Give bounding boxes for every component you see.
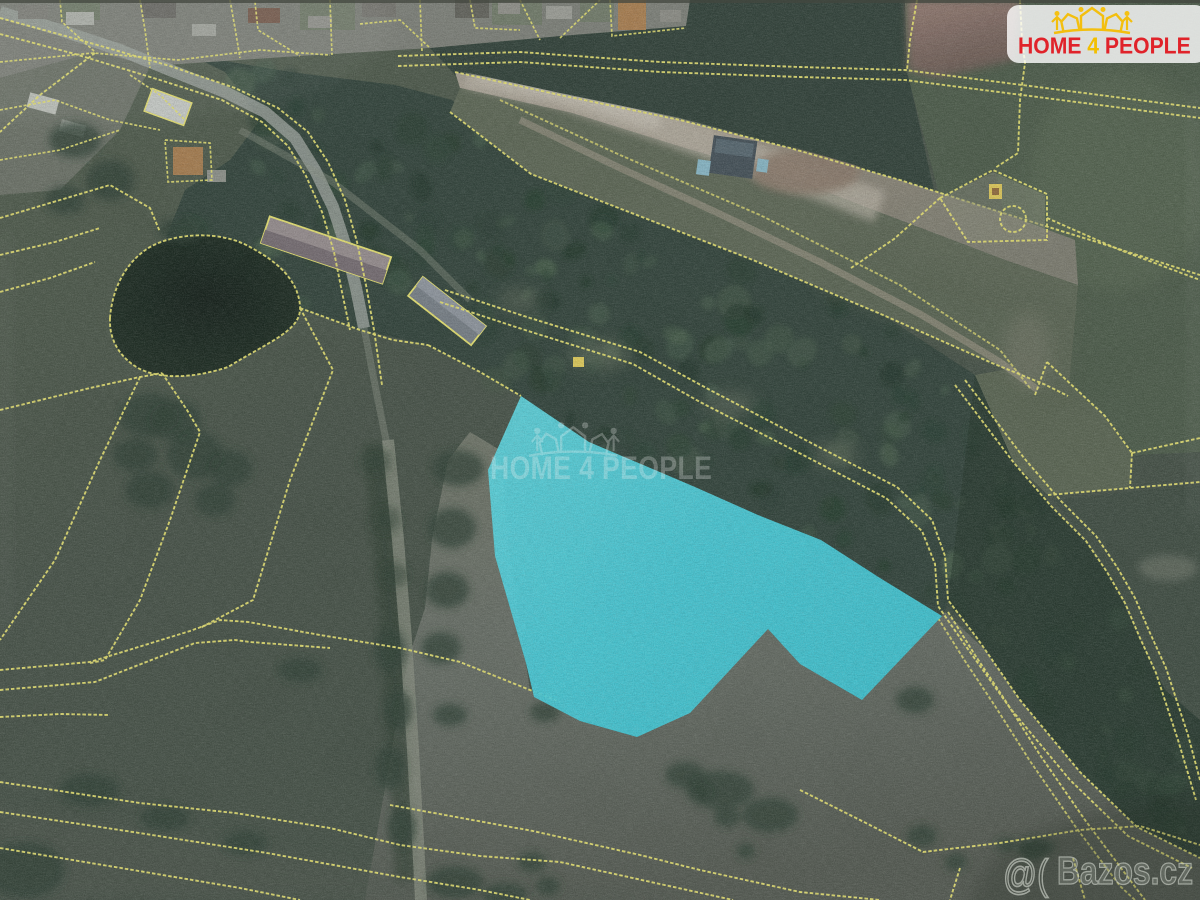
svg-text:@(: @( — [1003, 853, 1049, 899]
svg-text:Bazos.cz: Bazos.cz — [1057, 849, 1193, 893]
svg-text:HOME 4 PEOPLE: HOME 4 PEOPLE — [1018, 33, 1191, 59]
